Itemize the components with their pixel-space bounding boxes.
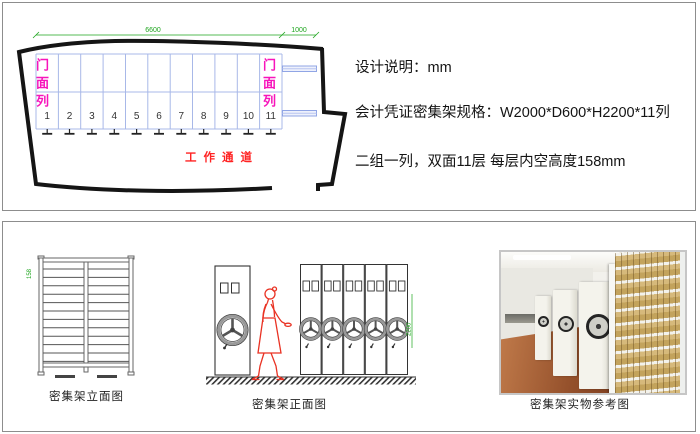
column-number: 7 bbox=[170, 111, 192, 125]
photo-cabinet-big bbox=[579, 282, 611, 389]
front-view-drawing: 2200 bbox=[198, 256, 423, 391]
elevation-caption: 密集架立面图 bbox=[49, 388, 124, 404]
column-number: 2 bbox=[58, 111, 80, 125]
single-cabinet bbox=[215, 266, 250, 375]
elevation-feet bbox=[55, 375, 117, 378]
photo-wall-recess bbox=[505, 314, 539, 323]
photo-archive-shelves bbox=[615, 250, 685, 395]
floor-plan-drawing: 6600 1000 bbox=[3, 3, 348, 210]
elevation-drawing: 158 bbox=[25, 251, 155, 386]
design-note-line1: 设计说明：mm bbox=[355, 56, 452, 77]
photo-reference bbox=[499, 250, 687, 395]
work-aisle-label: 工作通道 bbox=[185, 149, 259, 165]
photo-wheel-small bbox=[538, 316, 549, 327]
column-number: 8 bbox=[193, 111, 215, 125]
column-number: 5 bbox=[125, 111, 147, 125]
column-number: 11 bbox=[260, 111, 282, 125]
dim-total-label: 6600 bbox=[145, 27, 161, 34]
elevation-frame bbox=[38, 256, 134, 375]
column-number: 10 bbox=[237, 111, 259, 125]
front-column-label-left: 门面列 bbox=[34, 58, 48, 112]
dimension-lines bbox=[33, 32, 319, 38]
front-view-dim-label: 2200 bbox=[407, 322, 413, 336]
rail-marks bbox=[283, 66, 317, 116]
column-number: 4 bbox=[103, 111, 125, 125]
column-number: 1 bbox=[36, 111, 58, 125]
photo-cabinet-small bbox=[535, 296, 551, 360]
cabinet-group bbox=[300, 265, 409, 375]
screenshot-root: { "top_panel": { "floor_plan": { "dim_ma… bbox=[0, 0, 700, 434]
photo-right-frame bbox=[680, 252, 685, 393]
photo-ceiling-light bbox=[513, 255, 571, 260]
photo-cabinet-mid bbox=[553, 290, 577, 376]
photo-wheel-big bbox=[586, 314, 611, 339]
front-column-label-right: 门面列 bbox=[261, 58, 275, 112]
design-note-line3: 二组一列，双面11层 每层内空高度158mm bbox=[355, 150, 625, 171]
ground-hatch bbox=[206, 378, 416, 385]
column-number: 6 bbox=[148, 111, 170, 125]
top-panel: 6600 1000 bbox=[2, 2, 696, 211]
elevation-dim-label: 158 bbox=[27, 268, 33, 279]
column-number: 3 bbox=[81, 111, 103, 125]
column-foot-ticks bbox=[42, 129, 276, 134]
column-number: 9 bbox=[215, 111, 237, 125]
photo-wheel-mid bbox=[558, 316, 574, 332]
dim-right-label: 1000 bbox=[291, 27, 307, 34]
bottom-panel: 158 密集架立面图 bbox=[2, 221, 696, 432]
photo-caption: 密集架实物参考图 bbox=[530, 396, 630, 412]
front-view-caption: 密集架正面图 bbox=[252, 396, 327, 412]
column-numbers: 1234567891011 bbox=[36, 111, 282, 125]
person-figure bbox=[252, 287, 291, 380]
design-note-line2: 会计凭证密集架规格：W2000*D600*H2200*11列 bbox=[355, 101, 670, 122]
